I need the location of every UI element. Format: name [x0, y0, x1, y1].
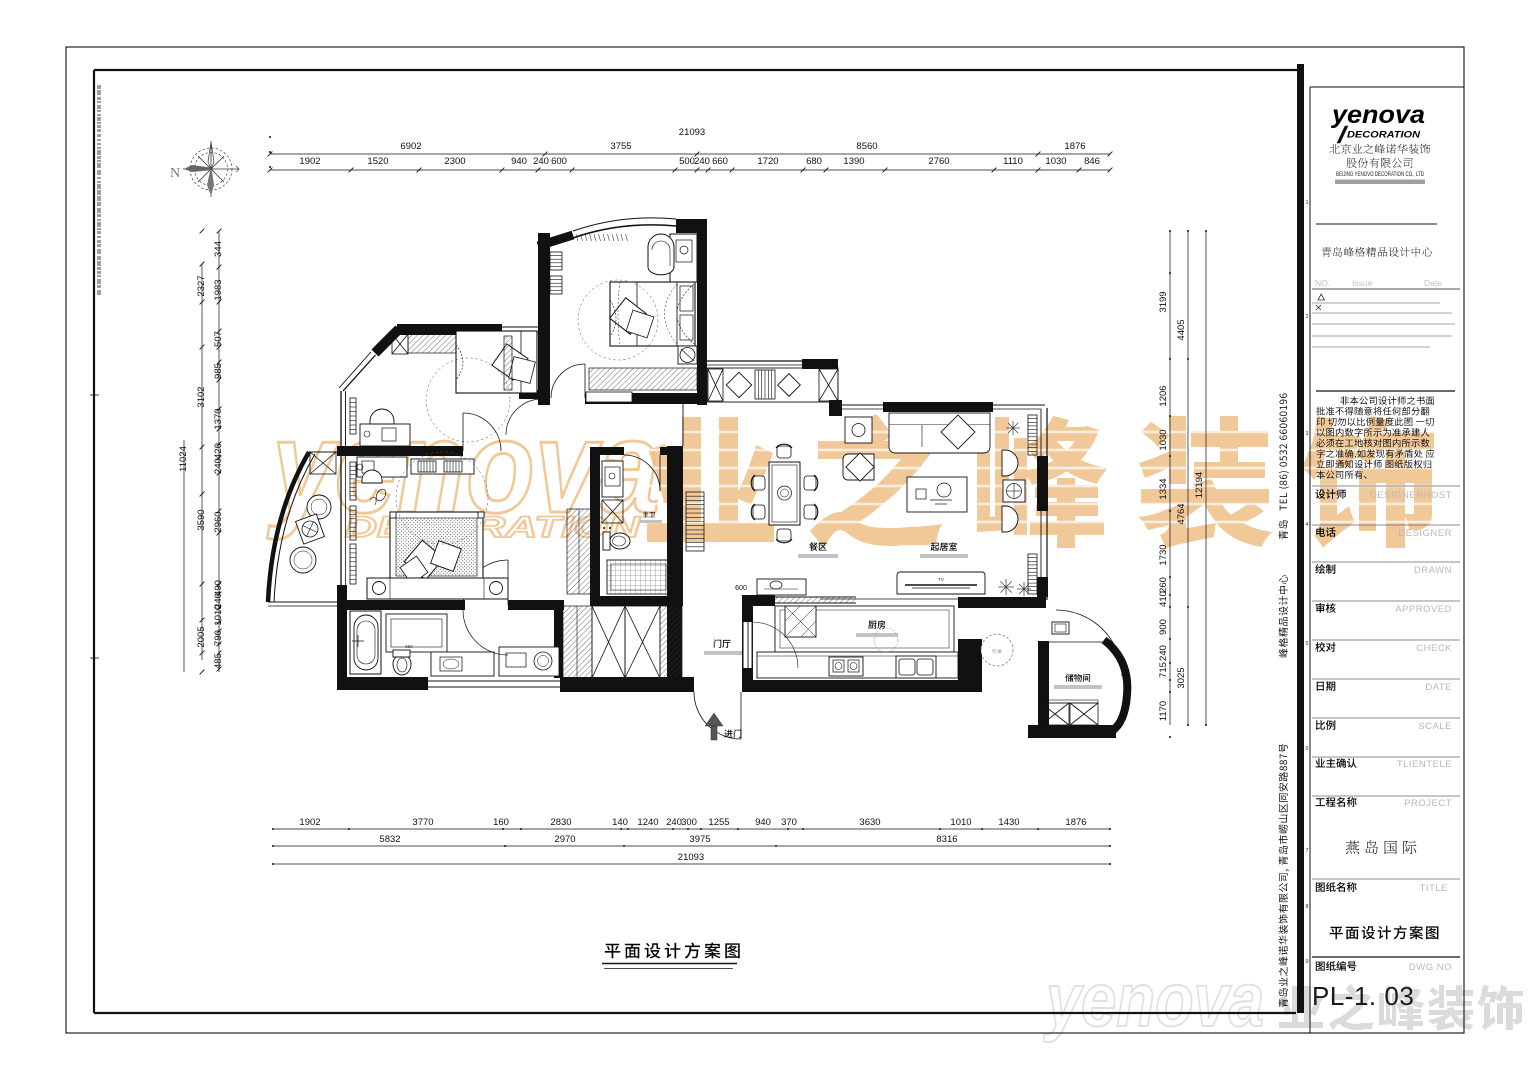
svg-text:240: 240	[694, 156, 710, 167]
svg-text:DATE: DATE	[1425, 682, 1452, 693]
svg-text:Issue: Issue	[1352, 278, 1373, 288]
svg-text:1240: 1240	[637, 817, 658, 828]
svg-text:940: 940	[511, 156, 527, 167]
svg-text:3199: 3199	[1158, 291, 1169, 312]
svg-text:yenova: yenova	[1043, 958, 1264, 1043]
svg-text:1902: 1902	[299, 156, 320, 167]
svg-text:140: 140	[612, 817, 628, 828]
svg-text:5: 5	[1305, 641, 1308, 647]
svg-text:1730: 1730	[1158, 544, 1169, 565]
svg-text:1: 1	[1305, 200, 1308, 206]
svg-text:600: 600	[735, 585, 747, 592]
svg-text:NO.: NO.	[1315, 278, 1330, 288]
svg-text:8316: 8316	[936, 834, 957, 845]
svg-text:2327: 2327	[196, 275, 207, 296]
svg-text:yenova: yenova	[1330, 101, 1425, 129]
svg-text:1390: 1390	[843, 156, 864, 167]
svg-text:2970: 2970	[554, 834, 575, 845]
svg-text:7: 7	[1305, 848, 1308, 854]
svg-text:1010: 1010	[950, 817, 971, 828]
svg-text:1170: 1170	[1158, 701, 1169, 721]
svg-text:4405: 4405	[1176, 319, 1187, 340]
svg-text:1902: 1902	[299, 817, 320, 828]
svg-text:300: 300	[681, 817, 697, 828]
svg-text:4: 4	[1305, 522, 1308, 528]
svg-text:3975: 3975	[689, 834, 710, 845]
svg-text:2: 2	[1305, 314, 1308, 320]
svg-text:846: 846	[1084, 156, 1100, 167]
svg-text:3: 3	[1305, 431, 1308, 437]
svg-text:500: 500	[679, 156, 695, 167]
svg-text:2760: 2760	[928, 156, 949, 167]
svg-text:1206: 1206	[1158, 385, 1169, 406]
svg-text:410: 410	[1158, 591, 1169, 607]
svg-text:8560: 8560	[856, 141, 877, 152]
svg-text:DECORATION: DECORATION	[1347, 130, 1421, 141]
svg-text:N: N	[170, 166, 180, 181]
svg-text:4764: 4764	[1176, 503, 1187, 524]
svg-text:900: 900	[1158, 619, 1169, 635]
svg-text:240: 240	[533, 156, 549, 167]
svg-text:1430: 1430	[998, 817, 1019, 828]
svg-text:3755: 3755	[610, 141, 631, 152]
svg-text:PROJECT: PROJECT	[1404, 798, 1452, 809]
svg-text:TLIENTELE: TLIENTELE	[1397, 759, 1452, 770]
svg-text:6: 6	[1305, 746, 1308, 752]
svg-text:DWG.NO: DWG.NO	[1409, 962, 1452, 973]
svg-text:8: 8	[1305, 904, 1308, 910]
svg-text:3590: 3590	[196, 509, 207, 530]
svg-text:21093: 21093	[678, 852, 704, 863]
svg-text:1983: 1983	[213, 279, 224, 300]
svg-text:APPROVED: APPROVED	[1395, 604, 1452, 615]
svg-text:CHECK: CHECK	[1416, 643, 1452, 654]
svg-text:2300: 2300	[444, 156, 465, 167]
svg-text:790: 790	[213, 630, 224, 646]
svg-text:240: 240	[213, 458, 224, 474]
svg-text:21093: 21093	[679, 127, 705, 138]
svg-text:160: 160	[493, 817, 509, 828]
svg-text:940: 940	[755, 817, 771, 828]
svg-text:SCALE: SCALE	[1418, 721, 1452, 732]
svg-text:1110: 1110	[1003, 156, 1023, 167]
svg-text:BEIJING YENOVO DECORATION CO.,: BEIJING YENOVO DECORATION CO., LTD	[1336, 171, 1424, 178]
svg-text:660: 660	[712, 156, 728, 167]
svg-text:11024: 11024	[178, 446, 189, 472]
svg-text:1255: 1255	[708, 817, 729, 828]
svg-text:1030: 1030	[1158, 429, 1169, 450]
svg-text:1370: 1370	[213, 408, 224, 429]
svg-text:715: 715	[1158, 662, 1169, 678]
svg-text:240: 240	[1158, 645, 1169, 661]
svg-text:6902: 6902	[400, 141, 421, 152]
svg-text:1334: 1334	[1158, 478, 1169, 499]
svg-text:1520: 1520	[367, 156, 388, 167]
svg-text:370: 370	[781, 817, 797, 828]
svg-text:260: 260	[1158, 577, 1169, 593]
svg-text:DESIGNERHOST: DESIGNERHOST	[1370, 490, 1452, 501]
svg-text:DESIGNER: DESIGNER	[1398, 528, 1452, 539]
svg-text:985: 985	[213, 363, 224, 379]
svg-text:PL-1. 03: PL-1. 03	[1312, 981, 1414, 1011]
svg-text:1720: 1720	[757, 156, 778, 167]
svg-text:3630: 3630	[859, 817, 880, 828]
svg-text:2005: 2005	[196, 626, 207, 647]
svg-text:1030: 1030	[1045, 156, 1066, 167]
svg-text:3770: 3770	[412, 817, 433, 828]
svg-text:12194: 12194	[1194, 472, 1205, 498]
svg-text:TITLE: TITLE	[1420, 883, 1448, 894]
svg-text:1876: 1876	[1064, 141, 1085, 152]
svg-text:485: 485	[213, 653, 224, 669]
svg-text:3025: 3025	[1176, 667, 1187, 688]
svg-text:600: 600	[551, 156, 567, 167]
svg-text:650: 650	[405, 644, 413, 649]
svg-text:2830: 2830	[550, 817, 571, 828]
svg-text:9: 9	[1305, 959, 1308, 965]
svg-text:2960: 2960	[213, 511, 224, 532]
svg-text:3102: 3102	[196, 386, 207, 407]
svg-text:344: 344	[213, 241, 224, 257]
svg-text:420: 420	[213, 443, 224, 459]
svg-text:680: 680	[806, 156, 822, 167]
svg-text:5832: 5832	[379, 834, 400, 845]
svg-text:1876: 1876	[1065, 817, 1086, 828]
svg-text:DRAWN: DRAWN	[1414, 565, 1452, 576]
svg-text:240: 240	[666, 817, 682, 828]
svg-text:Date: Date	[1424, 278, 1442, 288]
svg-text:TV: TV	[938, 577, 944, 582]
svg-text:507: 507	[213, 331, 224, 347]
